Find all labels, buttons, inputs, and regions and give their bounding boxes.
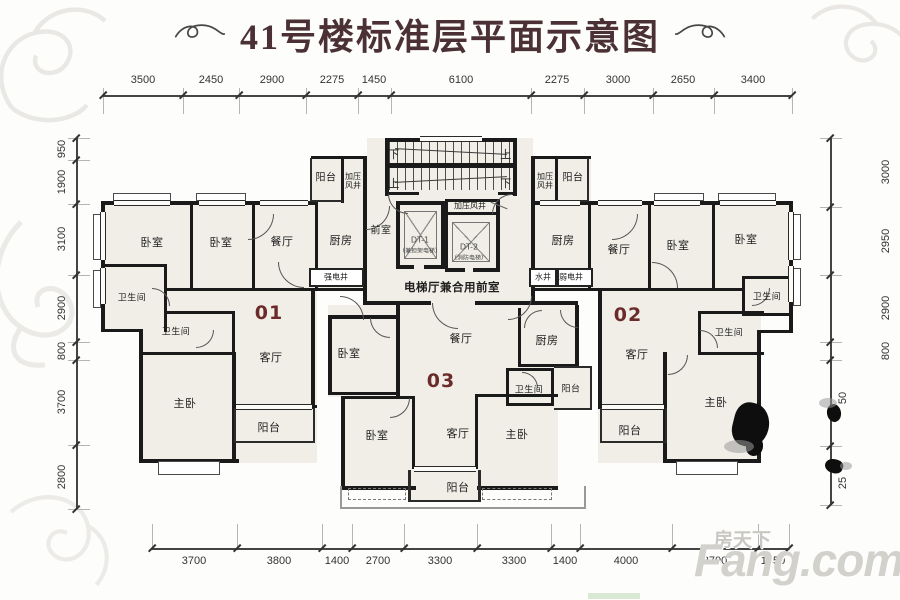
- window: [540, 200, 580, 206]
- wall: [551, 368, 554, 406]
- dashed-sill: [482, 488, 552, 500]
- window: [114, 200, 170, 206]
- window: [654, 200, 700, 206]
- room-label-living: 客厅: [260, 349, 283, 365]
- room-label-bathroom: 卫生间: [753, 290, 782, 303]
- ink-smear: [724, 440, 754, 453]
- balcony-rail: [310, 200, 343, 202]
- balcony-rail: [313, 408, 315, 443]
- room-label-kitchen: 厨房: [552, 232, 575, 248]
- watermark-logo: Fang.com: [694, 533, 900, 587]
- dim-bottom: 3300: [428, 555, 452, 567]
- wall: [424, 265, 445, 269]
- dim-left: 2900: [56, 296, 68, 320]
- dim-right: 2950: [880, 229, 892, 253]
- wall: [190, 203, 193, 291]
- room-label-master: 主卧: [506, 426, 529, 442]
- wall: [555, 156, 558, 203]
- scan-artifact: [588, 593, 640, 599]
- balcony-rail: [234, 408, 236, 443]
- wall: [311, 156, 367, 159]
- wall: [445, 268, 465, 272]
- dashed-sill: [348, 488, 406, 500]
- bay-window: [793, 268, 801, 306]
- dim-top: 1450: [362, 74, 386, 86]
- elevator-label-dt1: DT-1: [411, 236, 429, 245]
- room-label-bathroom: 卫生间: [118, 291, 147, 304]
- ink-smear: [840, 462, 852, 470]
- wall: [232, 311, 235, 355]
- room-label-balcony: 阳台: [619, 422, 642, 438]
- room-label-bedroom: 卧室: [141, 234, 164, 250]
- dim-top: 2900: [260, 74, 284, 86]
- shaft-label-pressure: 加压风井: [343, 172, 363, 190]
- window: [414, 466, 476, 472]
- unit-number-02: 02: [614, 304, 642, 326]
- terrace-outline: [584, 486, 586, 509]
- bay-window: [793, 214, 801, 260]
- extension-line: [820, 505, 842, 506]
- shaft-label-pressure: 加压风井: [535, 172, 555, 190]
- wall: [445, 212, 499, 215]
- wall: [445, 199, 448, 272]
- stair-label-down: 下: [500, 175, 512, 191]
- dim-bottom: 1400: [325, 555, 349, 567]
- dim-bottom: 3300: [502, 555, 526, 567]
- dim-right: 50: [837, 392, 849, 404]
- wall: [598, 289, 602, 409]
- bay-window: [158, 461, 220, 475]
- dim-right: 3000: [880, 160, 892, 184]
- wall: [712, 203, 715, 291]
- extension-line: [68, 342, 90, 343]
- dim-top: 6100: [449, 74, 473, 86]
- room-label-living: 客厅: [626, 346, 649, 362]
- balcony-rail: [310, 158, 312, 202]
- dim-right: 25: [837, 477, 849, 489]
- dim-line-left: [76, 138, 78, 509]
- floorplan-page: 41号楼标准层平面示意图 3500 2450 2900 2275 1450 61…: [0, 0, 900, 600]
- wall: [698, 311, 764, 314]
- dim-bottom: 1400: [553, 555, 577, 567]
- dim-top: 2650: [671, 74, 695, 86]
- wall: [101, 329, 143, 332]
- room-label-dining: 餐厅: [450, 330, 473, 346]
- balcony-rail: [408, 500, 481, 502]
- dim-right: 800: [880, 342, 892, 360]
- dim-left: 3100: [56, 227, 68, 251]
- shaft-label-pressure: 加压风井: [454, 201, 486, 212]
- wall: [742, 276, 745, 316]
- ink-smear: [819, 398, 837, 408]
- wall: [328, 392, 400, 395]
- door-arc: [340, 296, 364, 320]
- wall: [506, 403, 554, 406]
- dim-left: 950: [56, 140, 68, 158]
- extension-line: [68, 160, 90, 161]
- room-label-bathroom: 卫生间: [515, 383, 544, 396]
- wall: [648, 203, 651, 291]
- wall: [506, 368, 509, 406]
- extension-line: [68, 445, 90, 446]
- dim-bottom: 4000: [614, 555, 638, 567]
- window: [788, 212, 794, 260]
- room-label-bedroom: 卧室: [366, 427, 389, 443]
- wall: [164, 311, 234, 314]
- wall: [531, 288, 744, 291]
- bay-window: [676, 461, 738, 475]
- shaft-label-weak-electric: 弱电井: [559, 272, 583, 283]
- window: [100, 268, 106, 304]
- dim-left: 3700: [56, 390, 68, 414]
- window: [260, 200, 308, 206]
- stair-label-up: 上: [388, 175, 400, 191]
- window: [788, 266, 794, 302]
- elevator-note-dt2: (消防电梯): [455, 254, 483, 263]
- wall: [742, 276, 792, 279]
- wall: [506, 368, 554, 371]
- balcony-rail: [234, 441, 315, 443]
- window: [236, 404, 312, 410]
- room-label-elevator-hall: 电梯厅兼合用前室: [404, 279, 500, 295]
- room-label-bedroom: 卧室: [210, 234, 233, 250]
- title-row: 41号楼标准层平面示意图: [0, 8, 900, 60]
- room-label-dining: 餐厅: [608, 241, 631, 257]
- wall: [101, 264, 167, 267]
- balcony-rail: [408, 470, 411, 502]
- dim-top: 2450: [199, 74, 223, 86]
- room-label-balcony: 阳台: [258, 419, 281, 435]
- room-label-dining: 餐厅: [271, 233, 294, 249]
- wall: [341, 396, 345, 490]
- dim-top: 2275: [545, 74, 569, 86]
- balcony-rail: [587, 158, 589, 202]
- wall: [475, 394, 478, 469]
- wall: [513, 138, 517, 196]
- window: [720, 200, 776, 206]
- room-label-bedroom: 卧室: [338, 345, 361, 361]
- dim-line-right: [830, 138, 832, 505]
- terrace-outline: [340, 486, 342, 509]
- wall: [396, 305, 400, 397]
- elevator-note-dt1: (兼担架电梯): [403, 247, 437, 256]
- wall: [396, 265, 414, 269]
- dim-bottom: 2700: [366, 555, 390, 567]
- extension-line: [68, 138, 90, 139]
- title-flourish-left-icon: [174, 21, 226, 47]
- wall: [328, 315, 332, 395]
- dim-bottom: 3700: [182, 555, 206, 567]
- dim-top: 2275: [320, 74, 344, 86]
- balcony-rail: [554, 408, 592, 410]
- stair-label-down: 下: [388, 146, 400, 162]
- page-title: 41号楼标准层平面示意图: [240, 8, 660, 60]
- wall: [139, 352, 235, 355]
- room-label-master: 主卧: [174, 395, 197, 411]
- wall: [139, 329, 143, 463]
- dim-top: 3000: [606, 74, 630, 86]
- wall: [164, 288, 319, 291]
- dim-left: 1900: [56, 170, 68, 194]
- wall: [311, 288, 367, 291]
- balcony-rail: [554, 366, 592, 368]
- wall: [698, 352, 764, 355]
- room-label-bathroom: 卫生间: [162, 325, 191, 338]
- wall: [531, 156, 591, 159]
- dim-left: 800: [56, 342, 68, 360]
- wall: [311, 289, 315, 409]
- dim-left: 2800: [56, 465, 68, 489]
- room-label-living: 客厅: [447, 425, 470, 441]
- window: [100, 212, 106, 260]
- dim-right: 2900: [880, 296, 892, 320]
- balcony-rail: [665, 408, 667, 443]
- room-label-kitchen: 厨房: [330, 232, 353, 248]
- room-label-front-room: 前室: [371, 222, 392, 237]
- balcony-rail: [600, 441, 667, 443]
- room-label-bedroom: 卧室: [735, 231, 758, 247]
- unit-number-03: 03: [427, 370, 455, 392]
- dim-top: 3400: [741, 74, 765, 86]
- extension-line: [68, 204, 90, 205]
- stair-landing: [389, 163, 513, 168]
- shaft-label-water: 水井: [535, 272, 551, 283]
- balcony-rail: [600, 408, 602, 443]
- room-label-balcony: 阳台: [563, 169, 584, 184]
- extension-line: [68, 360, 90, 361]
- room-label-bedroom: 卧室: [667, 237, 690, 253]
- room-label-bathroom: 卫生间: [715, 326, 744, 339]
- dim-top: 3500: [131, 74, 155, 86]
- dim-line-top: [103, 95, 792, 97]
- balcony-rail: [478, 470, 481, 502]
- background-floral-ornament: [0, 470, 135, 600]
- elevator-label-dt2: DT-2: [460, 243, 478, 252]
- window: [598, 200, 642, 206]
- window: [602, 404, 664, 410]
- dim-bottom: 3800: [267, 555, 291, 567]
- stair-label-up: 上: [500, 146, 512, 162]
- title-flourish-right-icon: [674, 21, 726, 47]
- room-label-master: 主卧: [705, 394, 728, 410]
- wall: [412, 396, 415, 469]
- window: [199, 200, 245, 206]
- extension-line: [68, 509, 90, 510]
- balcony-rail: [590, 366, 592, 410]
- wall: [757, 330, 793, 333]
- shaft-label-strong-electric: 强电井: [324, 272, 348, 283]
- window: [420, 136, 482, 142]
- room-label-balcony: 阳台: [561, 382, 580, 395]
- unit-number-01: 01: [255, 302, 283, 324]
- terrace-outline: [341, 507, 586, 509]
- room-label-balcony: 阳台: [316, 169, 337, 184]
- wall: [473, 268, 500, 272]
- extension-line: [68, 275, 90, 276]
- room-label-balcony: 阳台: [447, 479, 470, 495]
- room-label-kitchen: 厨房: [536, 332, 559, 348]
